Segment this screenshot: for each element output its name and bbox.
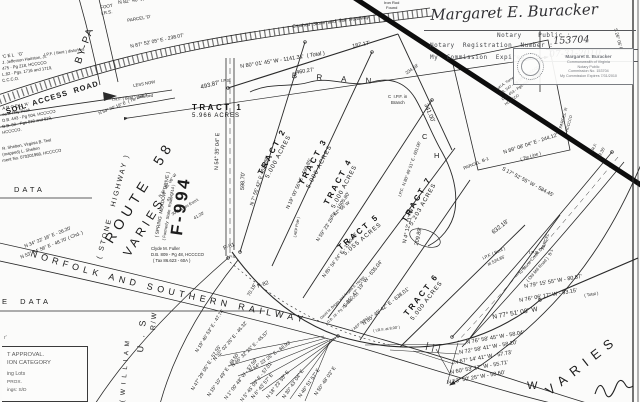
map-annotation: N 87° 52' 05" E - 238.07' — [130, 34, 185, 50]
map-annotation: PARCEL 'D' — [127, 15, 151, 24]
map-annotation: Clyde M. Fuller — [151, 247, 180, 252]
map-annotation: I.P.S. — [227, 255, 236, 259]
approval-line: ION CATEGORY — [7, 360, 87, 368]
tract-1-label: TRACT 1 5.966 ACRES — [192, 103, 243, 119]
map-annotation: ( Tax 86.623 - 60A ) — [153, 259, 190, 264]
map-annotation: P-81 — [223, 243, 236, 252]
data-table-label-1: DATA — [14, 186, 45, 194]
map-annotation: 41.20' — [193, 211, 205, 221]
plat-scan-page: NORFOLK AND SOUTHERN RAILWAY FOOTI.R.S.N… — [0, 0, 640, 402]
approval-line: ing Lots — [7, 371, 87, 377]
map-annotation: C.C.C.O. — [2, 77, 19, 84]
map-annotation: I.R.S. — [101, 10, 113, 17]
map-annotation: N 82° 40' W - 274.05' — [118, 0, 166, 6]
map-annotation: P-82 — [257, 281, 270, 290]
map-annotation: ( Total ) — [584, 292, 599, 299]
map-annotation: 209.89' — [415, 228, 424, 247]
map-annotation: B-1 — [548, 249, 554, 257]
map-annotation: C — [422, 133, 427, 141]
map-annotation: 493.87' — [200, 80, 220, 91]
map-annotation: I.R.F. — [590, 143, 598, 153]
notary-seal-icon — [517, 53, 544, 80]
map-annotation: N 77° 51' 08" W — [492, 307, 538, 322]
map-annotation: H — [434, 152, 439, 160]
map-annotation: 341.00' — [422, 103, 435, 123]
approval-line: T APPROVAL. — [7, 352, 87, 360]
registration-number-value: 153704 — [553, 34, 590, 47]
map-annotation: I.P.S. — [221, 79, 231, 84]
map-annotation: N 85° 45' 42" E - 638.01' — [362, 287, 411, 327]
approval-box: T APPROVAL. ION CATEGORY ing Lots PROX. … — [2, 346, 88, 402]
map-annotation: N 54° 35' 04" E — [215, 133, 222, 170]
approval-line: PROX. — [7, 380, 87, 385]
notary-stamp: Margaret E. Buracker Commonwealth of Vir… — [513, 48, 634, 85]
map-annotation: 234.59' — [405, 64, 420, 76]
map-annotation: HCCCCO. — [2, 128, 22, 136]
map-annotation: ( Tie Line ) — [520, 151, 542, 162]
w-letter-label: W — [527, 381, 537, 393]
stamp-expires: My Commission Expires 7/31/2010 — [547, 74, 630, 79]
map-annotation: D.B. 809 - Pg 48, HCCCCO — [151, 253, 204, 258]
map-annotation: ( I.R.F. at 8.00' ) — [373, 325, 400, 333]
map-annotation: Found — [386, 6, 397, 10]
map-annotation: 209.35' — [596, 147, 607, 161]
map-annotation: S 17° 52' 55" W - 584.45' — [500, 167, 554, 199]
notary-stamp-text: Margaret E. Buracker Commonwealth of Vir… — [547, 54, 630, 79]
map-annotation: N 76° 06' 17" W - 93.15' — [519, 289, 578, 305]
map-annotation: B R A N — [291, 72, 376, 86]
map-annotation: LESS NOW — [133, 80, 156, 88]
map-annotation: 598.70' — [241, 172, 247, 190]
map-annotation: 632.18' — [491, 219, 510, 236]
map-annotation: David M. Briggs and Angela S. Hodge — [320, 276, 366, 321]
map-annotation: ( AEP Pole ) — [293, 217, 301, 238]
map-annotation: PARCEL B-1 — [463, 157, 490, 171]
data-table-label-2: E DATA — [2, 298, 51, 306]
approval-mark: r' — [4, 336, 7, 341]
approval-line: ings: S/D — [7, 388, 87, 393]
map-annotation: Branch — [391, 101, 405, 106]
rw-label: R / W — [150, 313, 159, 331]
map-annotation: 187.17' — [352, 41, 371, 50]
map-annotation: C I.P.F. in — [388, 95, 407, 100]
signature-rule — [424, 30, 636, 31]
